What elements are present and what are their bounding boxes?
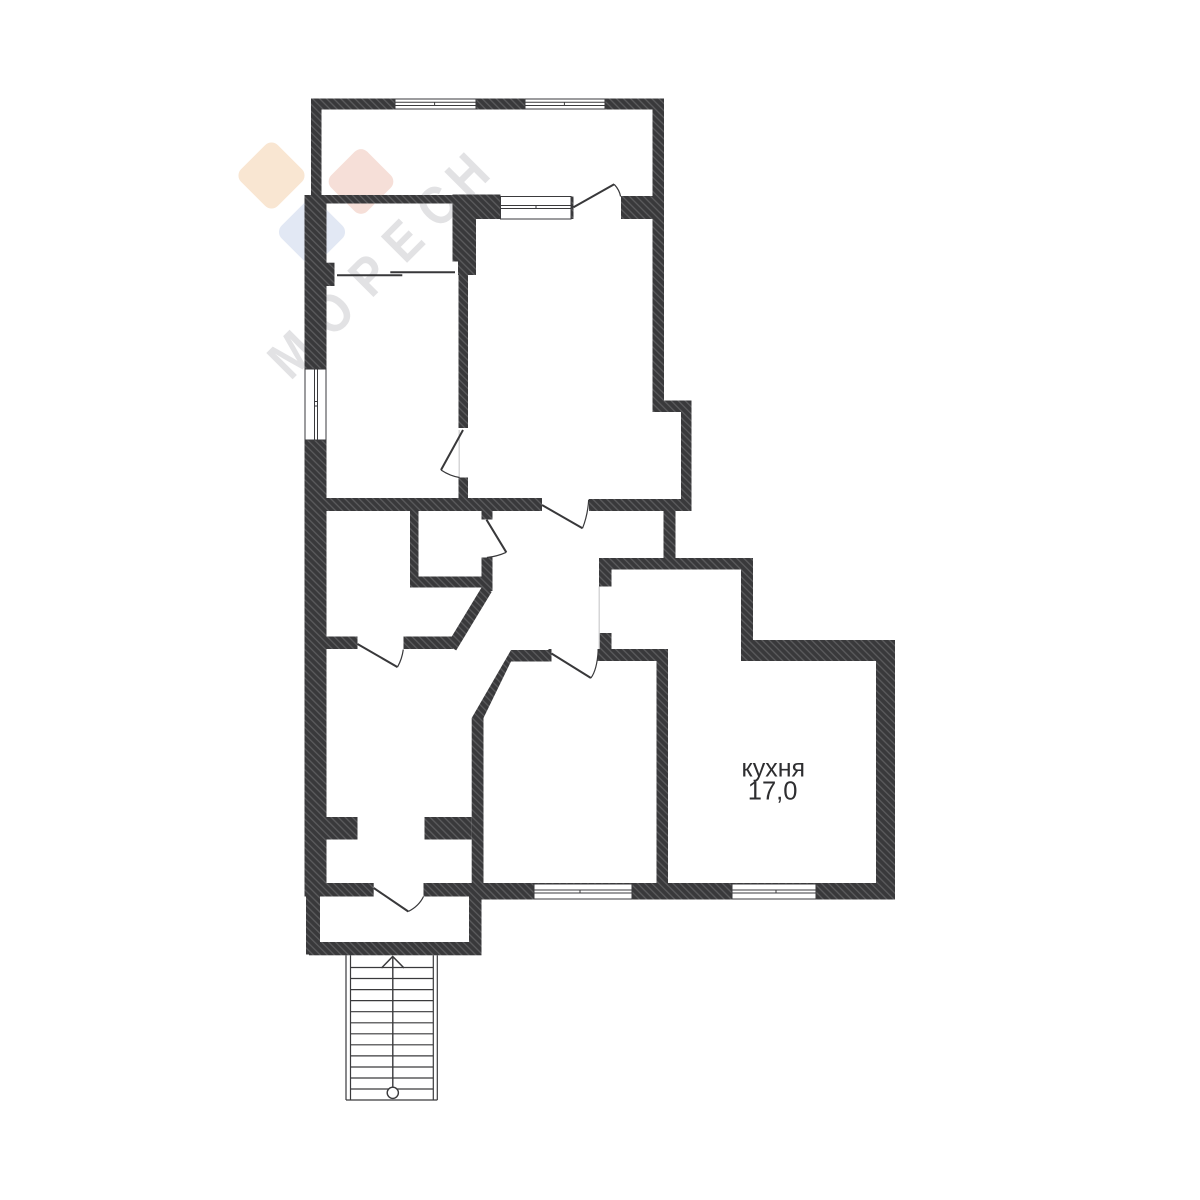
svg-text:17,0: 17,0 [748, 778, 798, 806]
